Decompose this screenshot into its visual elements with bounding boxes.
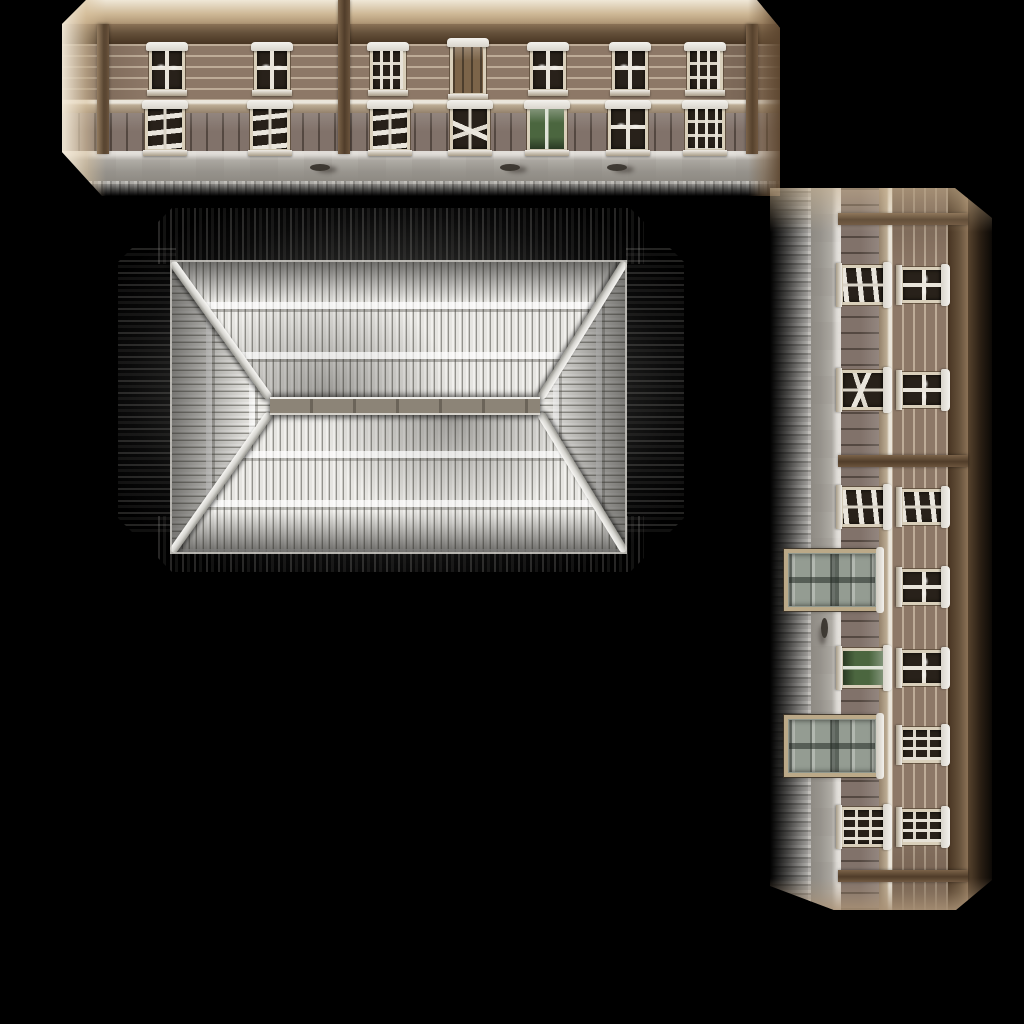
- window-sill: [683, 150, 727, 156]
- sprite-roof-top-view: [118, 208, 684, 572]
- texture-atlas-canvas: [0, 0, 1024, 1024]
- window-sill: [836, 263, 842, 307]
- window-sill: [896, 567, 902, 607]
- window-sill: [896, 487, 902, 527]
- window-panes: [257, 51, 287, 89]
- upper-window: [900, 650, 944, 686]
- entrance-door: [784, 549, 880, 611]
- window-panes: [903, 270, 941, 300]
- lower-window: [450, 106, 490, 152]
- lower-window: [608, 106, 648, 152]
- window-sill: [836, 368, 842, 412]
- eaves-overhang-wash: [62, 0, 780, 26]
- window-panes: [903, 730, 941, 760]
- window-snow-cap: [941, 647, 950, 689]
- window-sill: [368, 90, 408, 96]
- upper-window: [149, 48, 185, 92]
- window-sill: [610, 90, 650, 96]
- window-panes: [611, 109, 645, 149]
- lower-window: [250, 106, 290, 152]
- wall-post: [338, 0, 350, 154]
- window-snow-cap: [883, 804, 892, 850]
- window-snow-cap: [941, 264, 950, 306]
- upper-window: [687, 48, 723, 92]
- lower-window: [370, 106, 410, 152]
- wall-post: [838, 213, 968, 225]
- upper-window: [900, 372, 944, 408]
- wall-post: [838, 455, 968, 467]
- door-snow-cap: [876, 547, 884, 613]
- wall-post: [746, 24, 758, 154]
- window-panes: [688, 109, 722, 149]
- window-panes: [253, 109, 287, 149]
- window-snow-cap: [251, 42, 293, 51]
- upper-window: [900, 267, 944, 303]
- facade-surface: [770, 188, 992, 910]
- window-snow-cap: [367, 42, 409, 51]
- window-panes: [843, 373, 883, 407]
- window-panes: [843, 651, 883, 685]
- foundation-stain: [821, 618, 828, 638]
- window-panes: [690, 51, 720, 89]
- upper-window: [900, 809, 944, 845]
- foundation-stain: [310, 164, 330, 171]
- foundation-stain: [607, 164, 627, 171]
- window-sill: [448, 150, 492, 156]
- foundation-stain: [500, 164, 520, 171]
- window-sill: [836, 805, 842, 849]
- window-panes: [903, 812, 941, 842]
- lower-window: [840, 648, 886, 688]
- door-panels: [789, 720, 875, 772]
- shadow-streaks-left: [118, 248, 176, 532]
- window-sill: [836, 485, 842, 529]
- window-sill: [896, 370, 902, 410]
- sprite-side-wall-strip: [770, 188, 992, 910]
- window-sill: [685, 90, 725, 96]
- window-panes: [152, 51, 182, 89]
- window-snow-cap: [941, 486, 950, 528]
- roof-ridge-beam: [270, 397, 540, 415]
- window-snow-cap: [941, 806, 950, 848]
- window-panes: [843, 268, 883, 302]
- window-panes: [903, 375, 941, 405]
- window-panes: [530, 109, 564, 149]
- window-panes: [903, 492, 941, 522]
- ground-edge-smear: [62, 181, 780, 196]
- window-sill: [896, 648, 902, 688]
- window-snow-cap: [447, 100, 493, 109]
- window-sill: [143, 150, 187, 156]
- window-sill: [896, 725, 902, 765]
- window-sill: [525, 150, 569, 156]
- roof-faces: [172, 262, 625, 552]
- window-snow-cap: [609, 42, 651, 51]
- lower-window: [145, 106, 185, 152]
- upper-window: [612, 48, 648, 92]
- window-sill: [836, 646, 842, 690]
- window-snow-cap: [684, 42, 726, 51]
- eaves-overhang-wash: [966, 188, 992, 910]
- window-snow-cap: [447, 38, 489, 47]
- window-snow-cap: [883, 262, 892, 308]
- window-snow-cap: [146, 42, 188, 51]
- sprite-front-wall-strip: [62, 0, 780, 196]
- wall-post: [97, 24, 109, 154]
- wall-post: [838, 870, 968, 882]
- window-snow-cap: [941, 724, 950, 766]
- window-panes: [843, 810, 883, 844]
- upper-window: [900, 569, 944, 605]
- window-snow-cap: [142, 100, 188, 109]
- eaves-beam: [62, 24, 780, 44]
- window-sill: [528, 90, 568, 96]
- lower-window: [840, 370, 886, 410]
- shadow-streaks-right: [626, 248, 684, 532]
- window-snow-cap: [883, 367, 892, 413]
- window-snow-cap: [682, 100, 728, 109]
- door-panels: [789, 554, 875, 606]
- eaves-beam: [948, 188, 968, 910]
- window-snow-cap: [883, 645, 892, 691]
- door-snow-cap: [876, 713, 884, 779]
- upper-window: [254, 48, 290, 92]
- lower-window: [840, 487, 886, 527]
- upper-window: [900, 489, 944, 525]
- window-snow-cap: [527, 42, 569, 51]
- window-sill: [606, 150, 650, 156]
- window-panes: [373, 109, 407, 149]
- window-sill: [248, 150, 292, 156]
- window-snow-cap: [941, 566, 950, 608]
- upper-window: [450, 44, 486, 96]
- upper-window: [370, 48, 406, 92]
- window-snow-cap: [524, 100, 570, 109]
- window-sill: [252, 90, 292, 96]
- window-snow-cap: [883, 484, 892, 530]
- facade-surface: [62, 0, 780, 196]
- window-sill: [896, 265, 902, 305]
- window-sill: [896, 807, 902, 847]
- window-snow-cap: [367, 100, 413, 109]
- window-panes: [453, 109, 487, 149]
- window-panes: [903, 572, 941, 602]
- shadow-streaks-top: [158, 208, 644, 264]
- upper-window: [900, 727, 944, 763]
- window-panes: [843, 490, 883, 524]
- window-snow-cap: [605, 100, 651, 109]
- window-panes: [533, 51, 563, 89]
- window-sill: [368, 150, 412, 156]
- window-panes: [903, 653, 941, 683]
- window-panes: [148, 109, 182, 149]
- entrance-door: [784, 715, 880, 777]
- window-sill: [147, 90, 187, 96]
- window-snow-cap: [247, 100, 293, 109]
- lower-window: [685, 106, 725, 152]
- lower-window: [840, 807, 886, 847]
- window-panes: [373, 51, 403, 89]
- lower-window: [527, 106, 567, 152]
- window-snow-cap: [941, 369, 950, 411]
- upper-window: [530, 48, 566, 92]
- lower-window: [840, 265, 886, 305]
- window-panes: [615, 51, 645, 89]
- window-panes: [453, 47, 483, 93]
